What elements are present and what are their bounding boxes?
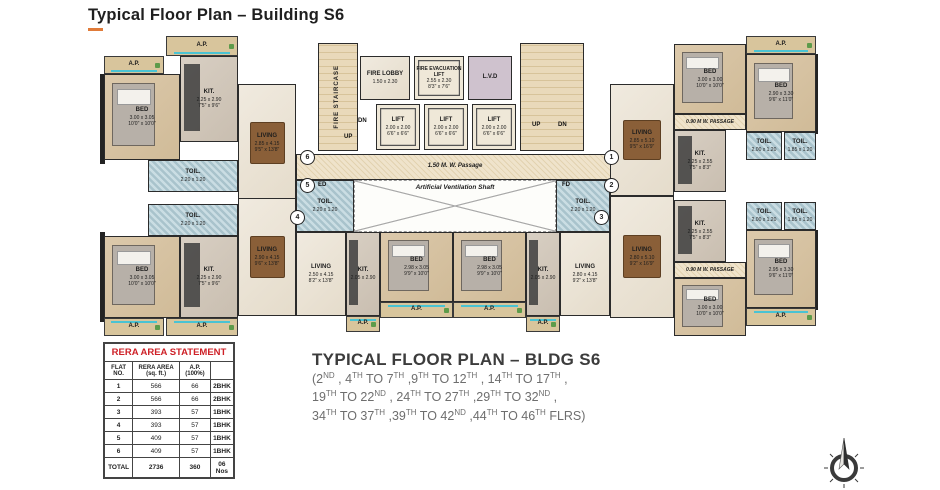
cell: 1BHK [210,432,234,445]
room-label: KIT. [358,267,369,274]
flat1-bedroom-1: BED3.00 x 3.0010'0" x 10'0" [674,44,746,114]
flat6-toilet: TOIL.2.20 x 1.20 [148,160,238,192]
flat4-living: LIVING2.50 x 4.158'2" x 13'8" [296,232,346,316]
page-title: Typical Floor Plan – Building S6 [88,6,344,25]
room-dim-ft: 7'5" x 9'6" [198,103,220,109]
cell: 2 [104,393,133,406]
flat5-kitchen: KIT.2.25 x 2.907'5" x 9'6" [180,236,238,318]
flat2-toilet-1: TOIL.2.00 x 1.20 [746,202,782,230]
flat1-living: LIVING2.85 x 5.109'5" x 16'9" [610,84,674,196]
ventilation-shaft: Artificial Ventilation Shaft [354,180,556,232]
flat-number-5: 5 [300,178,315,193]
cell: 360 [179,458,210,479]
room-dim-m: 1.85 x 1.20 [788,217,813,223]
flat1-toilet-2: TOIL.1.85 x 1.20 [784,132,816,160]
ap-label: A.P. [129,61,140,68]
cell: 1BHK [210,445,234,458]
caption-floors-line: (2ND , 4TH TO 7TH ,9TH TO 12TH , 14TH TO… [312,370,642,388]
cell: 66 [179,393,210,406]
cell: 57 [179,406,210,419]
rera-area-statement-table: RERA AREA STATEMENT FLAT NO. RERA AREA (… [103,342,235,479]
flat4-bedroom: BED2.98 x 3.059'9" x 10'0" [380,232,453,302]
room-label: LIFT [392,117,405,124]
room-dim-ft: 9'9" x 10'0" [477,271,502,277]
room-label: FIRE EVACUATION LIFT [415,66,463,78]
room-dim-m: 2.05 x 2.90 [531,275,556,281]
ap-label: A.P. [776,313,787,320]
room-label: TOIL. [317,199,332,206]
cell: 1 [104,380,133,393]
cell: 1BHK [210,419,234,432]
cell: 06 Nos [210,458,234,479]
room-dim-m: 2.05 x 2.90 [351,275,376,281]
ap-label: A.P. [411,306,422,313]
col-header: RERA AREA (sq. ft.) [133,362,180,380]
side-passage: 0.90 M W. PASSAGE [674,114,746,130]
room-label: LIVING [311,264,331,271]
room-dim-m: 2.20 x 1.20 [313,207,338,213]
room-dim-ft: 6'6" x 6'6" [435,131,457,137]
room-dim-ft: 9'5" x 13'8" [255,147,280,153]
flat1-kitchen: KIT.2.25 x 2.557'5" x 8'3" [674,130,726,192]
cell: 3 [104,406,133,419]
fire-staircase-label: FIRE STAIRCASE [334,65,341,129]
passage-label: 0.90 M W. PASSAGE [686,119,734,125]
cell: 409 [133,445,180,458]
room-label: TOIL. [756,209,771,216]
ap-balcony: A.P. [166,36,238,56]
room-label: LIFT [488,117,501,124]
room-dim-ft: 9'6" x 11'0" [769,273,793,279]
cell: 2736 [133,458,180,479]
room-label: LIVING [575,264,595,271]
cell: TOTAL [104,458,133,479]
cell: 5 [104,432,133,445]
room-dim-ft: 10'0" x 10'0" [696,311,723,317]
room-dim-ft: 9'2" x 13'8" [573,278,598,284]
room-dim-m: 1.85 x 1.20 [788,147,813,153]
room-dim-ft: 10'0" x 10'0" [128,121,155,127]
cell: 4 [104,419,133,432]
room-dim-ft: 9'9" x 10'0" [404,271,429,277]
table-row: 2566662BHK [104,393,234,406]
main-passage: 1.50 M. W. Passage [296,154,614,180]
room-label: TOIL. [792,139,807,146]
col-header [210,362,234,380]
room-label: L.V.D [483,74,498,81]
room-dim-ft: 10'0" x 10'0" [128,281,155,287]
staircase [520,43,584,151]
room-label: KIT. [695,221,706,228]
cell: 2BHK [210,393,234,406]
cell: 409 [133,432,180,445]
room-label: LIFT [440,117,453,124]
ap-balcony: A.P. [104,56,164,74]
fire-evacuation-lift: FIRE EVACUATION LIFT2.55 x 2.308'3" x 7'… [414,56,464,100]
room-label: TOIL. [792,209,807,216]
caption-floors-line: 19TH TO 22ND , 24TH TO 27TH ,29TH TO 32N… [312,388,642,406]
cell: 57 [179,432,210,445]
room-label: BED [775,83,788,90]
room-dim-ft: 10'0" x 10'0" [696,83,723,89]
room-dim-ft: 6'6" x 6'6" [387,131,409,137]
room-dim-ft: 9'6" x 13'8" [255,261,280,267]
room-dim-ft: 8'2" x 13'8" [309,278,334,284]
cell: 6 [104,445,133,458]
flat5-bedroom: BED3.00 x 3.0510'0" x 10'0" [104,236,180,318]
flat4-kitchen: KIT.2.05 x 2.90 [346,232,380,316]
flat6-bedroom: BED3.00 x 3.0510'0" x 10'0" [104,74,180,160]
dn-label: DN [358,118,367,124]
room-label: LIVING [632,247,652,254]
flat5-living: LIVING2.90 x 4.159'6" x 13'8" [238,198,296,316]
flat3-living: LIVING2.80 x 4.159'2" x 13'8" [560,232,610,316]
ap-balcony: A.P. [526,316,560,332]
flat6-living: LIVING2.85 x 4.159'5" x 13'8" [238,84,296,202]
flat1-toilet-1: TOIL.2.00 x 1.20 [746,132,782,160]
table-row: 6409571BHK [104,445,234,458]
ap-label: A.P. [197,42,208,49]
room-label: BED [704,297,717,304]
room-dim-m: 1.50 x 2.30 [373,79,398,85]
flat-number-6: 6 [300,150,315,165]
dn-label: DN [558,122,567,128]
cell: 66 [179,380,210,393]
room-label: KIT. [538,267,549,274]
rera-table-title: RERA AREA STATEMENT [104,343,234,362]
room-dim-ft: 7'5" x 8'3" [689,235,711,241]
room-label: LIVING [632,130,652,137]
cell: 57 [179,419,210,432]
caption-title: TYPICAL FLOOR PLAN – BLDG S6 [312,350,642,370]
flat2-bedroom-1: BED3.00 x 3.0010'0" x 10'0" [674,278,746,336]
ap-label: A.P. [776,41,787,48]
lift-3: LIFT2.00 x 2.006'6" x 6'6" [472,104,516,150]
room-dim-ft: 9'2" x 16'9" [630,261,655,267]
room-label: TOIL. [185,213,200,220]
room-dim-m: 2.00 x 1.20 [752,147,777,153]
fire-lobby: FIRE LOBBY1.50 x 2.30 [360,56,410,100]
ap-balcony: A.P. [166,318,238,336]
room-dim-ft: 9'6" x 11'0" [769,97,793,103]
up-label: UP [532,122,540,128]
room-label: TOIL. [185,169,200,176]
table-total-row: TOTAL273636006 Nos [104,458,234,479]
caption-floors-line: 34TH TO 37TH ,39TH TO 42ND ,44TH TO 46TH… [312,407,642,425]
room-label: LIVING [257,133,277,140]
flat-number-2: 2 [604,178,619,193]
flat3-bedroom: BED2.98 x 3.059'9" x 10'0" [453,232,526,302]
kitchen-counter-icon [529,240,538,306]
lift-2: LIFT2.00 x 2.006'6" x 6'6" [424,104,468,150]
ap-balcony: A.P. [346,316,380,332]
cell: 2BHK [210,380,234,393]
room-label: BED [483,257,496,264]
room-label: KIT. [204,267,215,274]
ed-label: ED [318,182,326,188]
cell: 57 [179,445,210,458]
flat-number-4: 4 [290,210,305,225]
room-dim-ft: 9'5" x 16'9" [630,144,655,150]
lift-1: LIFT2.00 x 2.006'6" x 6'6" [376,104,420,150]
up-label: UP [344,134,352,140]
ap-label: A.P. [358,320,369,327]
flat2-kitchen: KIT.2.25 x 2.557'5" x 8'3" [674,200,726,262]
cell: 566 [133,393,180,406]
table-row: 5409571BHK [104,432,234,445]
ap-label: A.P. [129,323,140,330]
kitchen-counter-icon [349,240,358,306]
room-dim-m: 2.20 x 1.20 [181,177,206,183]
passage-label: 1.50 M. W. Passage [428,163,483,170]
cell: 566 [133,380,180,393]
ap-label: A.P. [484,306,495,313]
ap-balcony: A.P. [104,318,164,336]
room-dim-ft: 6'6" x 6'6" [483,131,505,137]
room-dim-m: 2.20 x 1.20 [181,221,206,227]
room-label: LIVING [257,247,277,254]
table-row: 1566662BHK [104,380,234,393]
ap-balcony: A.P. [380,302,453,318]
col-header: A.P. (100%) [179,362,210,380]
cell: 393 [133,406,180,419]
table-header-row: FLAT NO. RERA AREA (sq. ft.) A.P. (100%) [104,362,234,380]
room-dim-m: 2.00 x 1.20 [752,217,777,223]
cell: 393 [133,419,180,432]
table-row: 4393571BHK [104,419,234,432]
shaft-label: Artificial Ventilation Shaft [416,184,495,192]
flat-number-1: 1 [604,150,619,165]
room-label: BED [136,267,149,274]
room-label: BED [410,257,423,264]
lvd-room: L.V.D [468,56,512,100]
room-label: TOIL. [575,199,590,206]
floor-plan-drawing: A.P. A.P. KIT.2.25 x 2.907'5" x 9'6" BED… [100,30,820,342]
fd-label: FD [562,182,570,188]
flat1-bedroom-2: BED2.90 x 3.309'6" x 11'0" [746,54,816,132]
flat6-kitchen: KIT.2.25 x 2.907'5" x 9'6" [180,56,238,142]
room-label: BED [704,69,717,76]
room-dim-ft: 7'5" x 9'6" [198,281,220,287]
north-compass-icon [818,436,870,488]
plan-caption: TYPICAL FLOOR PLAN – BLDG S6 (2ND , 4TH … [312,350,642,425]
ap-balcony: A.P. [746,308,816,326]
ap-balcony: A.P. [746,36,816,54]
passage-label: 0.90 M W. PASSAGE [686,267,734,273]
room-dim-ft: 7'5" x 8'3" [689,165,711,171]
table-row: 3393571BHK [104,406,234,419]
side-passage: 0.90 M W. PASSAGE [674,262,746,278]
room-label: KIT. [695,151,706,158]
room-label: BED [775,259,788,266]
ap-label: A.P. [538,320,549,327]
room-label: BED [136,107,149,114]
ap-balcony: A.P. [453,302,526,318]
ap-label: A.P. [197,323,208,330]
room-dim-m: 2.20 x 1.20 [571,207,596,213]
flat2-living: LIVING2.80 x 5.109'2" x 16'9" [610,196,674,318]
flat2-bedroom-2: BED2.95 x 3.309'6" x 11'0" [746,230,816,308]
room-label: KIT. [204,89,215,96]
col-header: FLAT NO. [104,362,133,380]
flat2-toilet-2: TOIL.1.85 x 1.20 [784,202,816,230]
flat3-kitchen: KIT.2.05 x 2.90 [526,232,560,316]
flat5-toilet: TOIL.2.20 x 1.20 [148,204,238,236]
room-label: FIRE LOBBY [367,71,403,78]
room-dim-ft: 8'3" x 7'6" [428,84,450,90]
room-label: TOIL. [756,139,771,146]
cell: 1BHK [210,406,234,419]
flat-number-3: 3 [594,210,609,225]
